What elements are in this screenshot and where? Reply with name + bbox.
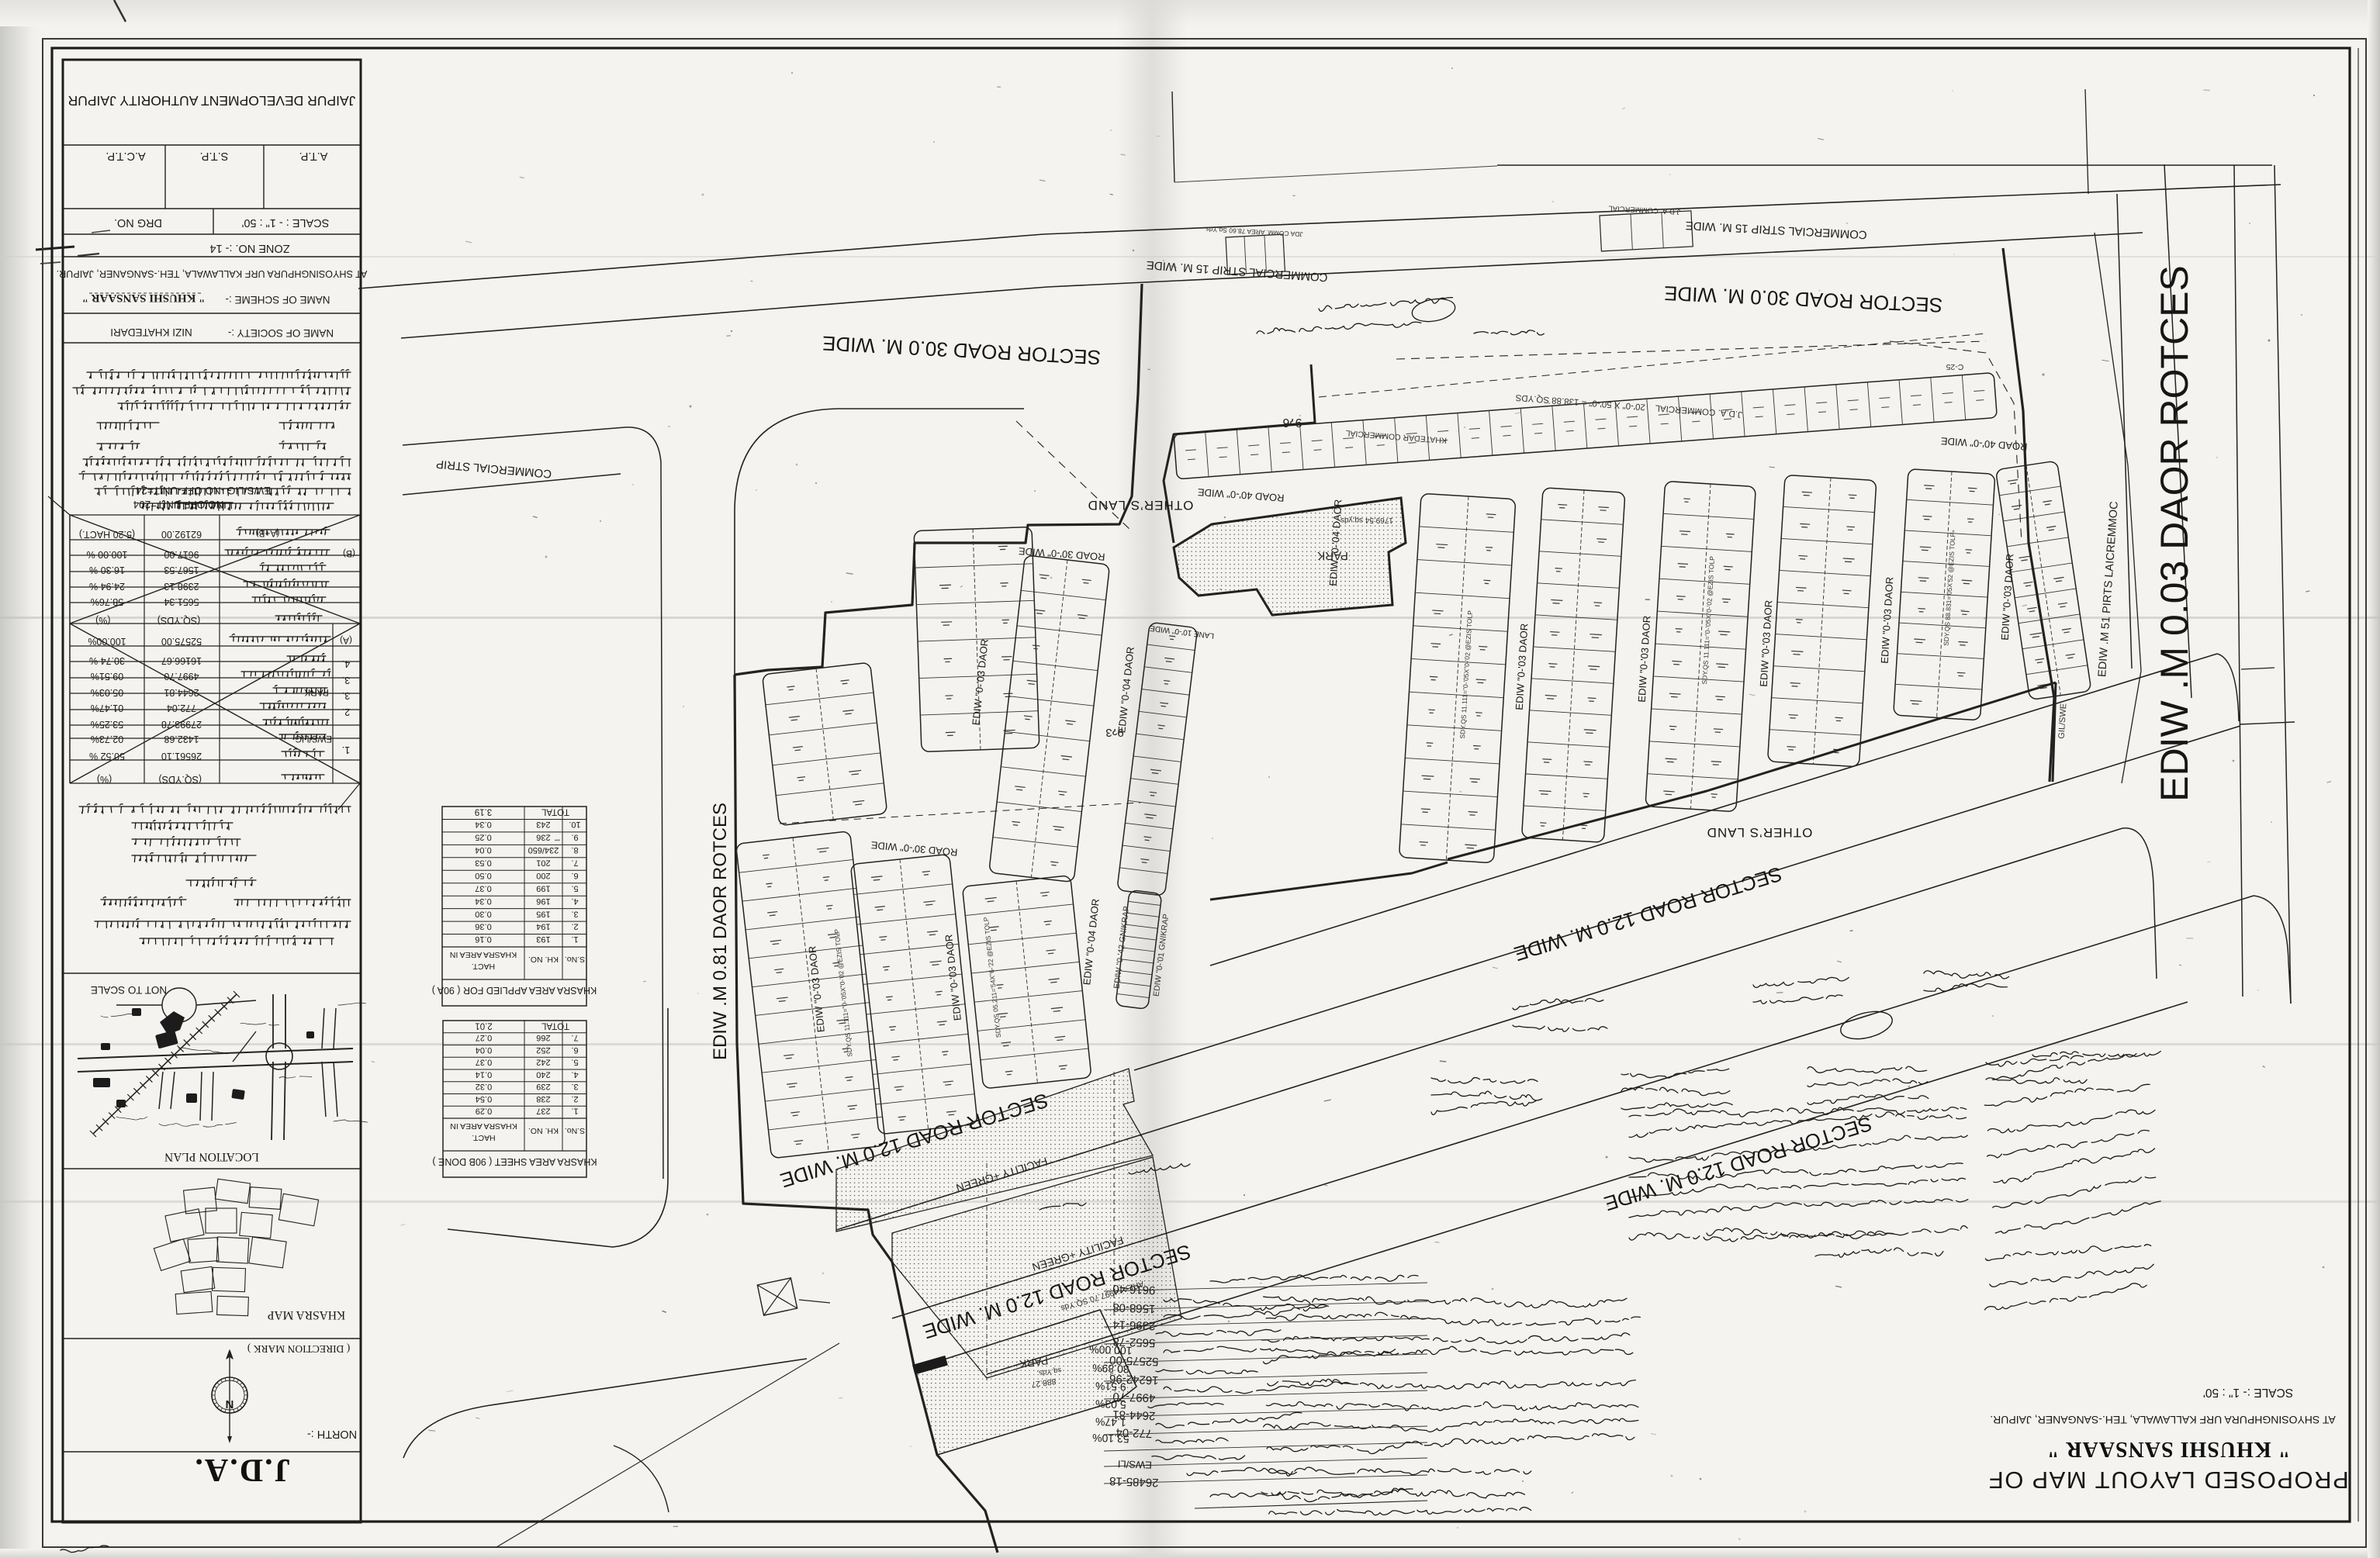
svg-text:09.51%: 09.51% xyxy=(91,671,123,682)
svg-text:0.53: 0.53 xyxy=(475,858,491,867)
svg-text:A.T.P.: A.T.P. xyxy=(299,150,328,162)
svg-text:27993.78: 27993.78 xyxy=(161,719,202,730)
svg-text:EDIW .M 0.81 DAOR ROTCES: EDIW .M 0.81 DAOR ROTCES xyxy=(710,803,731,1060)
svg-text:100.00%: 100.00% xyxy=(88,636,126,647)
svg-text:6.: 6. xyxy=(571,1045,578,1055)
svg-text:10.: 10. xyxy=(569,820,580,829)
svg-text:02.73%: 02.73% xyxy=(91,734,123,744)
svg-text:05.03%: 05.03% xyxy=(91,687,123,698)
svg-text:OTHER’S...: OTHER’S... xyxy=(2016,958,2017,959)
svg-text:3.: 3. xyxy=(571,1082,578,1091)
svg-text:TOTAL: TOTAL xyxy=(541,807,569,817)
svg-text:0.50: 0.50 xyxy=(475,871,491,880)
svg-text:PROPOSED LAYOUT MAP OF: PROPOSED LAYOUT MAP OF xyxy=(1987,1466,2348,1494)
svg-text:N: N xyxy=(226,1397,234,1411)
svg-text:NOT TO SCALE: NOT TO SCALE xyxy=(91,984,167,996)
svg-text:SECTOR ROAD 12.0 M. WIDE: SECTOR ROAD 12.0 M. WIDE xyxy=(1511,862,1784,966)
svg-text:DRG NO.: DRG NO. xyxy=(114,216,162,229)
svg-text:(B): (B) xyxy=(343,548,355,559)
svg-text:0.34: 0.34 xyxy=(475,820,491,829)
svg-text:199: 199 xyxy=(536,883,550,893)
svg-text:EDIW .M 0.03 DAOR ROTCES: EDIW .M 0.03 DAOR ROTCES xyxy=(2153,265,2196,802)
svg-text:2.: 2. xyxy=(571,1094,578,1104)
svg-text:S.No.: S.No. xyxy=(565,955,585,964)
svg-text:EDIW .M 51 PIRTS LAICREMMOC: EDIW .M 51 PIRTS LAICREMMOC xyxy=(2096,501,2121,678)
svg-text:SDY.QS 05.211='54X"6-'22 @EZIS: SDY.QS 05.211='54X"6-'22 @EZIS TOLP xyxy=(982,917,1002,1038)
svg-text:EDIW "0-'03 DAOR: EDIW "0-'03 DAOR xyxy=(943,934,963,1021)
svg-text:16166.67: 16166.67 xyxy=(161,655,202,666)
svg-text:3.: 3. xyxy=(342,675,350,686)
svg-text:(%): (%) xyxy=(95,615,119,626)
svg-text:EDIW "0-'03 DAOR: EDIW "0-'03 DAOR xyxy=(1758,599,1775,687)
svg-text:ROAD 30'-0" WIDE: ROAD 30'-0" WIDE xyxy=(870,839,958,858)
svg-text:200: 200 xyxy=(536,871,550,880)
svg-text:COMMERCIAL STRIP: COMMERCIAL STRIP xyxy=(435,458,552,481)
svg-text:KHASRA AREA IN: KHASRA AREA IN xyxy=(450,950,517,959)
svg-text:242: 242 xyxy=(536,1058,550,1067)
svg-text:EDIW "0-'42 GNIKRAP: EDIW "0-'42 GNIKRAP xyxy=(1112,906,1132,990)
svg-text:HACT.: HACT. xyxy=(472,1133,495,1142)
svg-text:6.: 6. xyxy=(571,871,578,880)
svg-text:0.29: 0.29 xyxy=(476,1107,492,1116)
svg-text:7.: 7. xyxy=(571,858,578,867)
svg-text:COMMERCIAL STRIP 15 M. WIDE: COMMERCIAL STRIP 15 M. WIDE xyxy=(1685,219,1867,241)
svg-text:1568-08: 1568-08 xyxy=(1112,1301,1156,1315)
svg-text:238: 238 xyxy=(536,1094,550,1104)
svg-text:3.: 3. xyxy=(342,690,350,701)
svg-text:KHASRA MAP: KHASRA MAP xyxy=(268,1308,345,1321)
svg-text:SECTOR ROAD 30.0 M. WIDE: SECTOR ROAD 30.0 M. WIDE xyxy=(1663,282,1942,317)
svg-text:ROAD 40'-0" WIDE: ROAD 40'-0" WIDE xyxy=(1940,435,2028,453)
svg-text:EWS/LI: EWS/LI xyxy=(1118,1458,1153,1471)
svg-text:EDIW "0-'03 DAOR: EDIW "0-'03 DAOR xyxy=(1879,576,1896,664)
svg-text:EWS/LIG -NO OFF-UNIT=24: EWS/LIG -NO OFF-UNIT=24 xyxy=(135,485,271,496)
svg-text:26561.10: 26561.10 xyxy=(161,751,202,762)
svg-text:S.No.: S.No. xyxy=(565,1126,585,1135)
svg-text:0.04: 0.04 xyxy=(475,845,491,855)
svg-text:194: 194 xyxy=(536,922,550,931)
svg-text:(SQ.YDS): (SQ.YDS) xyxy=(158,774,204,785)
svg-text:243: 243 xyxy=(536,820,550,829)
svg-text:0.04: 0.04 xyxy=(476,1045,492,1055)
svg-text:" KHUSHI SANSAAR ": " KHUSHI SANSAAR " xyxy=(2046,1437,2290,1461)
svg-text:3.19: 3.19 xyxy=(475,807,492,817)
svg-text:LOCATION PLAN: LOCATION PLAN xyxy=(164,1150,259,1163)
svg-text:0.16: 0.16 xyxy=(475,934,491,944)
svg-text:EDIW "0-'03 DAOR: EDIW "0-'03 DAOR xyxy=(806,945,827,1033)
svg-text:(A): (A) xyxy=(340,635,352,646)
svg-text:TOTAL: TOTAL xyxy=(541,1021,569,1031)
svg-text:1567.53: 1567.53 xyxy=(164,565,199,575)
svg-text:(A+B): (A+B) xyxy=(255,528,279,539)
svg-text:ROAD 30'-0" WIDE: ROAD 30'-0" WIDE xyxy=(1018,545,1105,563)
svg-text:HACT.: HACT. xyxy=(472,962,495,971)
svg-text:2.01: 2.01 xyxy=(475,1021,492,1031)
svg-text:237: 237 xyxy=(536,1107,550,1116)
svg-text:0.25: 0.25 xyxy=(475,833,491,842)
svg-text:0.36: 0.36 xyxy=(475,922,491,931)
svg-text:SDY.QS 88.831='05X'52 @EZIS TO: SDY.QS 88.831='05X'52 @EZIS TOLP xyxy=(1942,532,1957,646)
svg-text:KHASRA AREA APPLIED FOR ( 90A: KHASRA AREA APPLIED FOR ( 90A ) xyxy=(432,985,597,996)
svg-text:S.T.P.: S.T.P. xyxy=(200,150,229,162)
svg-text:9.51%: 9.51% xyxy=(1095,1380,1126,1393)
svg-text:16.30 %: 16.30 % xyxy=(89,565,125,575)
svg-text:0.37: 0.37 xyxy=(475,883,491,893)
svg-text:SDY.QS 11.111="0-'05X"0-'02 @E: SDY.QS 11.111="0-'05X"0-'02 @EZIS TOLP xyxy=(1700,556,1716,685)
svg-text:SCALE :- 1" : 50': SCALE :- 1" : 50' xyxy=(2203,1386,2293,1399)
svg-text:(5.20 HACT.): (5.20 HACT.) xyxy=(79,529,135,540)
svg-text:1769.54 sq.yds: 1769.54 sq.yds xyxy=(1340,516,1393,524)
svg-text:5.: 5. xyxy=(571,1058,578,1067)
svg-text:1432.68: 1432.68 xyxy=(164,734,199,744)
svg-text:KHASRA AREA IN: KHASRA AREA IN xyxy=(450,1121,517,1131)
svg-text:NAME OF SCHEME :-: NAME OF SCHEME :- xyxy=(225,294,330,306)
svg-text:9.: 9. xyxy=(571,833,578,842)
svg-text:5651.34: 5651.34 xyxy=(164,596,199,607)
svg-text:1.47%: 1.47% xyxy=(1095,1415,1126,1428)
svg-text:9616-40: 9616-40 xyxy=(1112,1282,1156,1297)
svg-text:KH. NO.: KH. NO. xyxy=(528,1126,559,1135)
svg-text:ZONE NO. :- 14: ZONE NO. :- 14 xyxy=(209,242,289,254)
svg-text:NORTH :-: NORTH :- xyxy=(307,1428,357,1440)
svg-text:OTHER’S LAND: OTHER’S LAND xyxy=(1707,825,1813,840)
svg-text:KHASRA AREA SHEET ( 90B DONE ): KHASRA AREA SHEET ( 90B DONE ) xyxy=(432,1156,597,1167)
svg-text:772.04: 772.04 xyxy=(167,703,196,713)
svg-text:0.34: 0.34 xyxy=(475,896,491,906)
svg-text:9ɂ6: 9ɂ6 xyxy=(1282,416,1302,429)
svg-text:5.: 5. xyxy=(571,883,578,893)
svg-text:9ɂ3: 9ɂ3 xyxy=(1105,726,1123,739)
svg-text:1.: 1. xyxy=(571,1107,578,1116)
svg-text:0.14: 0.14 xyxy=(476,1070,492,1080)
svg-text:01.47%: 01.47% xyxy=(91,703,123,713)
svg-text:AT SHYOSINGHPURA URF KALLAWALA: AT SHYOSINGHPURA URF KALLAWALA, TEH.-SAN… xyxy=(1990,1414,2336,1426)
svg-text:8.: 8. xyxy=(571,845,578,855)
svg-text:4.: 4. xyxy=(571,896,578,906)
svg-text:0.30: 0.30 xyxy=(475,909,491,918)
svg-text:5.03%: 5.03% xyxy=(1095,1397,1126,1411)
svg-text:26485-18: 26485-18 xyxy=(1109,1474,1159,1489)
svg-text:196: 196 xyxy=(536,896,550,906)
svg-text:53.10%: 53.10% xyxy=(1092,1432,1129,1446)
svg-text:C-25: C-25 xyxy=(1946,362,1963,371)
svg-text:193: 193 xyxy=(536,934,550,944)
svg-text:EWS/LIG: EWS/LIG xyxy=(295,734,332,743)
svg-text:EDIW "0-'03 DAOR: EDIW "0-'03 DAOR xyxy=(1513,623,1531,710)
svg-text:J.D.A.: J.D.A. xyxy=(193,1452,290,1487)
svg-text:PARK: PARK xyxy=(1317,549,1348,562)
svg-text:A.C.T.P.: A.C.T.P. xyxy=(106,150,145,162)
svg-text:GIL/SWE: GIL/SWE xyxy=(2057,703,2069,739)
svg-text:52575.00: 52575.00 xyxy=(161,636,202,647)
svg-text:100.00%: 100.00% xyxy=(1089,1343,1133,1357)
svg-text:1.: 1. xyxy=(571,934,578,944)
svg-text:4.: 4. xyxy=(342,658,350,669)
svg-text:2.: 2. xyxy=(571,922,578,931)
svg-text:JAIPUR DEVELOPMENT AUTHORITY J: JAIPUR DEVELOPMENT AUTHORITY JAIPUR xyxy=(68,93,356,109)
svg-text:3.: 3. xyxy=(571,909,578,918)
svg-text:0.54: 0.54 xyxy=(476,1094,492,1104)
svg-text:COMMERCIAL STRIP 15 M. WIDE: COMMERCIAL STRIP 15 M. WIDE xyxy=(1146,258,1328,284)
svg-text:62192.00: 62192.00 xyxy=(161,529,202,540)
svg-text:234/650: 234/650 xyxy=(528,845,559,855)
svg-text:( DIRECTION MARK ): ( DIRECTION MARK ) xyxy=(247,1343,350,1355)
svg-text:30.74 %: 30.74 % xyxy=(89,655,125,666)
svg-text:0.27: 0.27 xyxy=(476,1033,492,1042)
svg-text:KH. NO.: KH. NO. xyxy=(528,955,559,964)
svg-text:4.: 4. xyxy=(571,1070,578,1080)
svg-text:JDA COMM. AREA 78.60 Sq.Yds.: JDA COMM. AREA 78.60 Sq.Yds. xyxy=(1204,226,1303,239)
svg-text:SECTOR ROAD 12.0 M. WIDE: SECTOR ROAD 12.0 M. WIDE xyxy=(1601,1112,1874,1216)
svg-text:9617.00: 9617.00 xyxy=(164,549,199,560)
svg-text:EDIW "0-'04 DAOR: EDIW "0-'04 DAOR xyxy=(1116,646,1136,734)
svg-text:SECTOR ROAD 30.0 M. WIDE: SECTOR ROAD 30.0 M. WIDE xyxy=(822,332,1101,370)
svg-text:SCALE : - 1" : 50': SCALE : - 1" : 50' xyxy=(241,216,329,229)
svg-text:NAME OF SOCIETY :-: NAME OF SOCIETY :- xyxy=(228,327,334,339)
svg-text:EDIW "0-'03 DAOR: EDIW "0-'03 DAOR xyxy=(1636,615,1653,703)
svg-text:195: 195 xyxy=(536,909,550,918)
svg-text:0.37: 0.37 xyxy=(476,1058,492,1067)
svg-text:OTHER’S LAND: OTHER’S LAND xyxy=(1088,498,1194,513)
svg-text:53.25%: 53.25% xyxy=(91,719,123,730)
svg-text:100.00 %: 100.00 % xyxy=(87,549,128,560)
svg-text:EDIW "0-'03 DAOR: EDIW "0-'03 DAOR xyxy=(1999,553,2016,641)
svg-text:2396-14: 2396-14 xyxy=(1112,1318,1156,1332)
svg-text:7.: 7. xyxy=(571,1033,578,1042)
svg-text:4997.70: 4997.70 xyxy=(164,671,199,682)
svg-text:201: 201 xyxy=(536,858,550,867)
svg-text:240: 240 xyxy=(536,1070,550,1080)
svg-text:252: 252 xyxy=(536,1045,550,1055)
svg-text:2644.81: 2644.81 xyxy=(164,687,199,698)
svg-text:ROAD 40'-0" WIDE: ROAD 40'-0" WIDE xyxy=(1197,486,1285,504)
svg-text:239: 239 xyxy=(536,1082,550,1091)
svg-text:0.32: 0.32 xyxy=(476,1082,492,1091)
svg-text:2.: 2. xyxy=(342,706,350,717)
svg-text:EDIW "0-'04 DAOR: EDIW "0-'04 DAOR xyxy=(1081,898,1102,986)
svg-text:AT SHYOSINGHPURA URF KALLAWALA: AT SHYOSINGHPURA URF KALLAWALA, TEH.-SAN… xyxy=(57,268,368,279)
svg-text:NO OFF UNIT=204: NO OFF UNIT=204 xyxy=(133,499,223,510)
svg-text:(SQ.YDS): (SQ.YDS) xyxy=(157,615,206,626)
svg-text:1.: 1. xyxy=(342,744,350,755)
svg-text:PARK: PARK xyxy=(304,687,329,698)
svg-text:J.D.A. COMMERCIAL: J.D.A. COMMERCIAL xyxy=(1608,204,1680,216)
svg-text:NIZI KHATEDARI: NIZI KHATEDARI xyxy=(110,326,192,338)
svg-text:(%): (%) xyxy=(97,774,117,785)
svg-text:236: 236 xyxy=(536,833,550,842)
svg-text:24.94 %: 24.94 % xyxy=(89,581,125,592)
svg-text:266: 266 xyxy=(536,1033,550,1042)
